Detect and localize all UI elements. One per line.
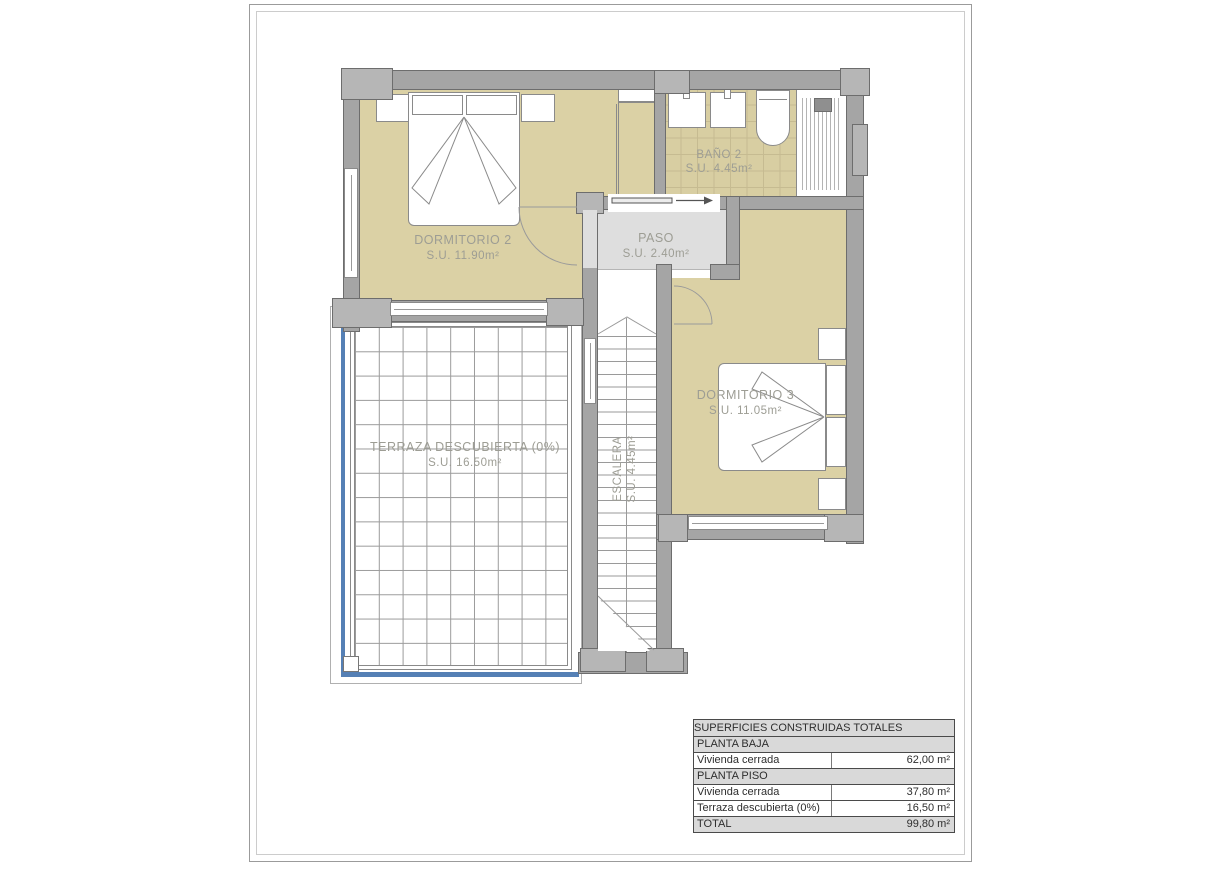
label-bano2: BAÑO 2 S.U. 4.45m² bbox=[654, 148, 784, 177]
table-row-total: TOTAL 99,80 m² bbox=[694, 816, 954, 832]
wall-dorm3-north bbox=[710, 264, 740, 280]
terrace-corner-detail bbox=[343, 656, 359, 672]
room-area: S.U. 2.40m² bbox=[596, 247, 716, 261]
room-area: S.U. 11.05m² bbox=[658, 404, 833, 418]
closet-shelf bbox=[618, 88, 656, 102]
window-dorm2-south bbox=[390, 302, 548, 316]
terrace-blue-edge-left bbox=[341, 310, 345, 676]
pillar-top-right bbox=[840, 68, 870, 96]
row-value: 62,00 m² bbox=[831, 753, 954, 768]
closet-divider bbox=[616, 104, 617, 200]
window-dorm2-west bbox=[344, 168, 358, 278]
row-label: PLANTA BAJA bbox=[694, 737, 954, 752]
floor-plan-page: DORMITORIO 2 S.U. 11.90m² BAÑO 2 S.U. 4.… bbox=[0, 0, 1220, 870]
room-name: TERRAZA DESCUBIERTA (0%) bbox=[357, 440, 573, 456]
room-name: PASO bbox=[596, 231, 716, 247]
room-area: S.U. 16.50m² bbox=[357, 456, 573, 470]
pillar-dorm2-sw bbox=[332, 298, 392, 328]
row-label: Vivienda cerrada bbox=[694, 785, 831, 800]
pillow bbox=[466, 95, 517, 115]
wall-stairs-right bbox=[656, 264, 672, 674]
summary-table-title: SUPERFICIES CONSTRUIDAS TOTALES bbox=[694, 720, 954, 736]
window-stairs-west bbox=[584, 338, 596, 404]
pillar-dorm3-se bbox=[824, 514, 864, 542]
pillow bbox=[826, 417, 846, 467]
room-area: S.U. 4.45m² bbox=[625, 409, 639, 529]
terrace-blue-edge-bottom bbox=[341, 672, 579, 677]
row-label: PLANTA PISO bbox=[694, 769, 954, 784]
nightstand bbox=[818, 478, 846, 510]
row-value: 99,80 m² bbox=[832, 817, 954, 832]
label-dormitorio3: DORMITORIO 3 S.U. 11.05m² bbox=[658, 388, 833, 418]
table-row-section: PLANTA PISO bbox=[694, 768, 954, 784]
nightstand bbox=[818, 328, 846, 360]
summary-table: SUPERFICIES CONSTRUIDAS TOTALES PLANTA B… bbox=[693, 719, 955, 833]
opening-dorm2-paso bbox=[583, 210, 597, 268]
table-row: Vivienda cerrada 37,80 m² bbox=[694, 784, 954, 800]
row-value: 16,50 m² bbox=[831, 801, 954, 816]
pillar-stairs-bl bbox=[580, 648, 626, 672]
pillar-dorm3-sw bbox=[658, 514, 688, 542]
room-name: DORMITORIO 2 bbox=[358, 233, 568, 249]
pillow bbox=[412, 95, 463, 115]
toilet-icon bbox=[756, 90, 790, 146]
wall-dorm2-bano bbox=[654, 88, 666, 198]
label-escalera: ESCALERA S.U. 4.45m² bbox=[611, 409, 645, 529]
window-dorm3-south bbox=[688, 516, 828, 530]
label-paso: PASO S.U. 2.40m² bbox=[596, 231, 716, 261]
pillar-top-left bbox=[341, 68, 393, 100]
room-area: S.U. 4.45m² bbox=[654, 162, 784, 176]
faucet-icon bbox=[724, 89, 731, 99]
room-name: ESCALERA bbox=[611, 409, 625, 529]
room-name: BAÑO 2 bbox=[654, 148, 784, 162]
table-row-section: PLANTA BAJA bbox=[694, 736, 954, 752]
table-row: Vivienda cerrada 62,00 m² bbox=[694, 752, 954, 768]
shower-drain-icon bbox=[814, 98, 832, 112]
row-label: TOTAL bbox=[694, 817, 832, 832]
nightstand bbox=[521, 94, 555, 122]
table-row: Terraza descubierta (0%) 16,50 m² bbox=[694, 800, 954, 816]
pillar-stairs-br bbox=[646, 648, 684, 672]
pillar-top-mid bbox=[654, 70, 690, 94]
wall-top bbox=[343, 70, 864, 90]
closet bbox=[618, 102, 656, 198]
row-label: Terraza descubierta (0%) bbox=[694, 801, 831, 816]
room-area: S.U. 11.90m² bbox=[358, 249, 568, 263]
row-label: Vivienda cerrada bbox=[694, 753, 831, 768]
room-name: DORMITORIO 3 bbox=[658, 388, 833, 404]
pillar-right-niche bbox=[852, 124, 868, 176]
label-terraza: TERRAZA DESCUBIERTA (0%) S.U. 16.50m² bbox=[357, 440, 573, 470]
row-value: 37,80 m² bbox=[831, 785, 954, 800]
label-dormitorio2: DORMITORIO 2 S.U. 11.90m² bbox=[358, 233, 568, 263]
room-dormitorio3-floor-upper bbox=[738, 208, 848, 280]
terrace-tiles bbox=[354, 326, 568, 666]
pillar-dorm2-se bbox=[546, 298, 584, 326]
opening-bano-sliding bbox=[608, 194, 720, 212]
